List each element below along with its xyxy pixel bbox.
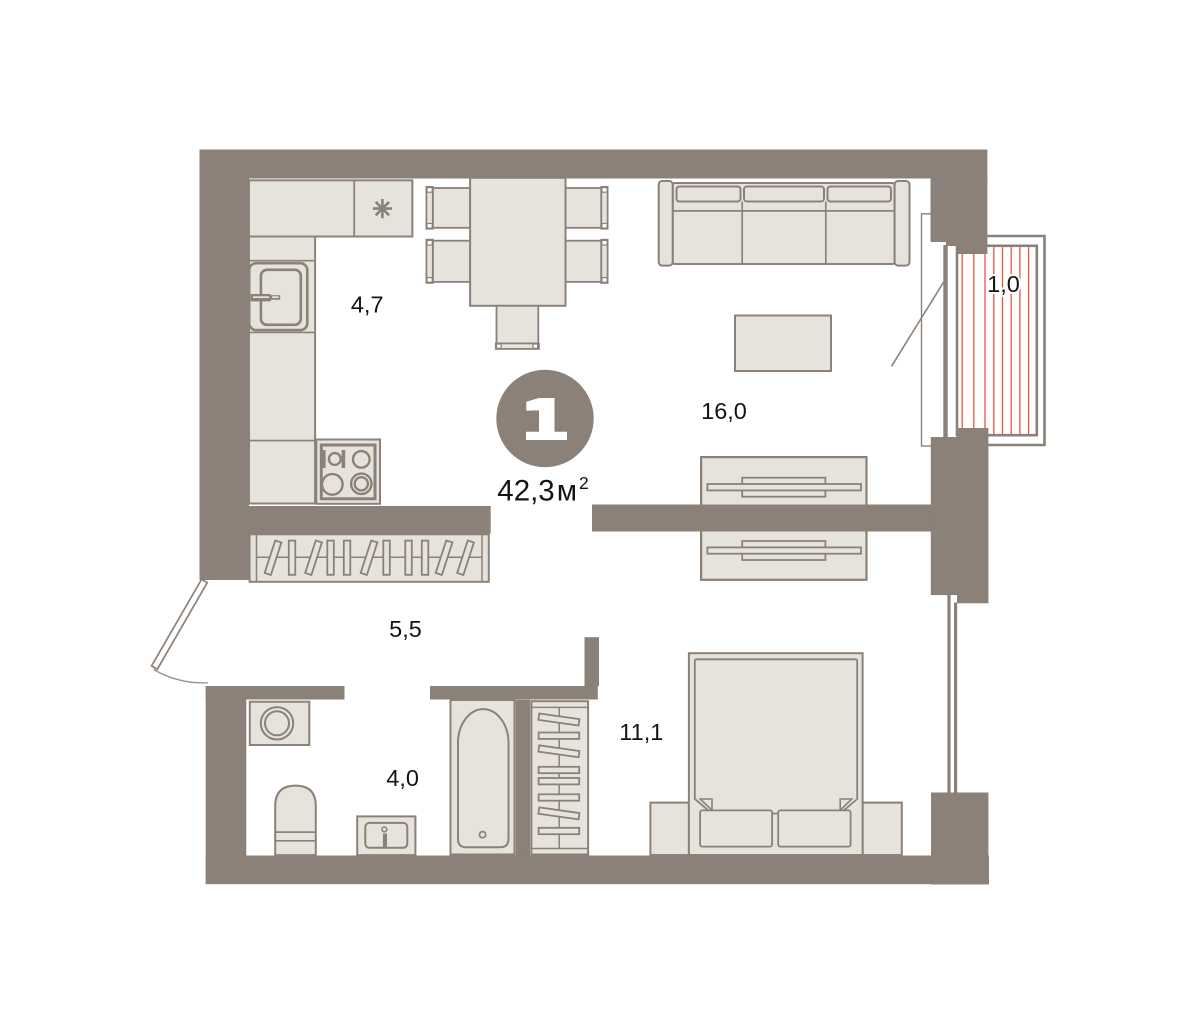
svg-text:1,0: 1,0 [987, 271, 1020, 297]
svg-text:2: 2 [579, 473, 589, 493]
svg-text:42,3: 42,3 [497, 474, 554, 507]
svg-text:11,1: 11,1 [619, 719, 663, 745]
svg-text:4,7: 4,7 [351, 292, 384, 318]
svg-text:16,0: 16,0 [701, 398, 747, 424]
svg-text:5,5: 5,5 [389, 616, 422, 642]
svg-text:4,0: 4,0 [386, 765, 419, 791]
svg-text:м: м [557, 474, 577, 507]
